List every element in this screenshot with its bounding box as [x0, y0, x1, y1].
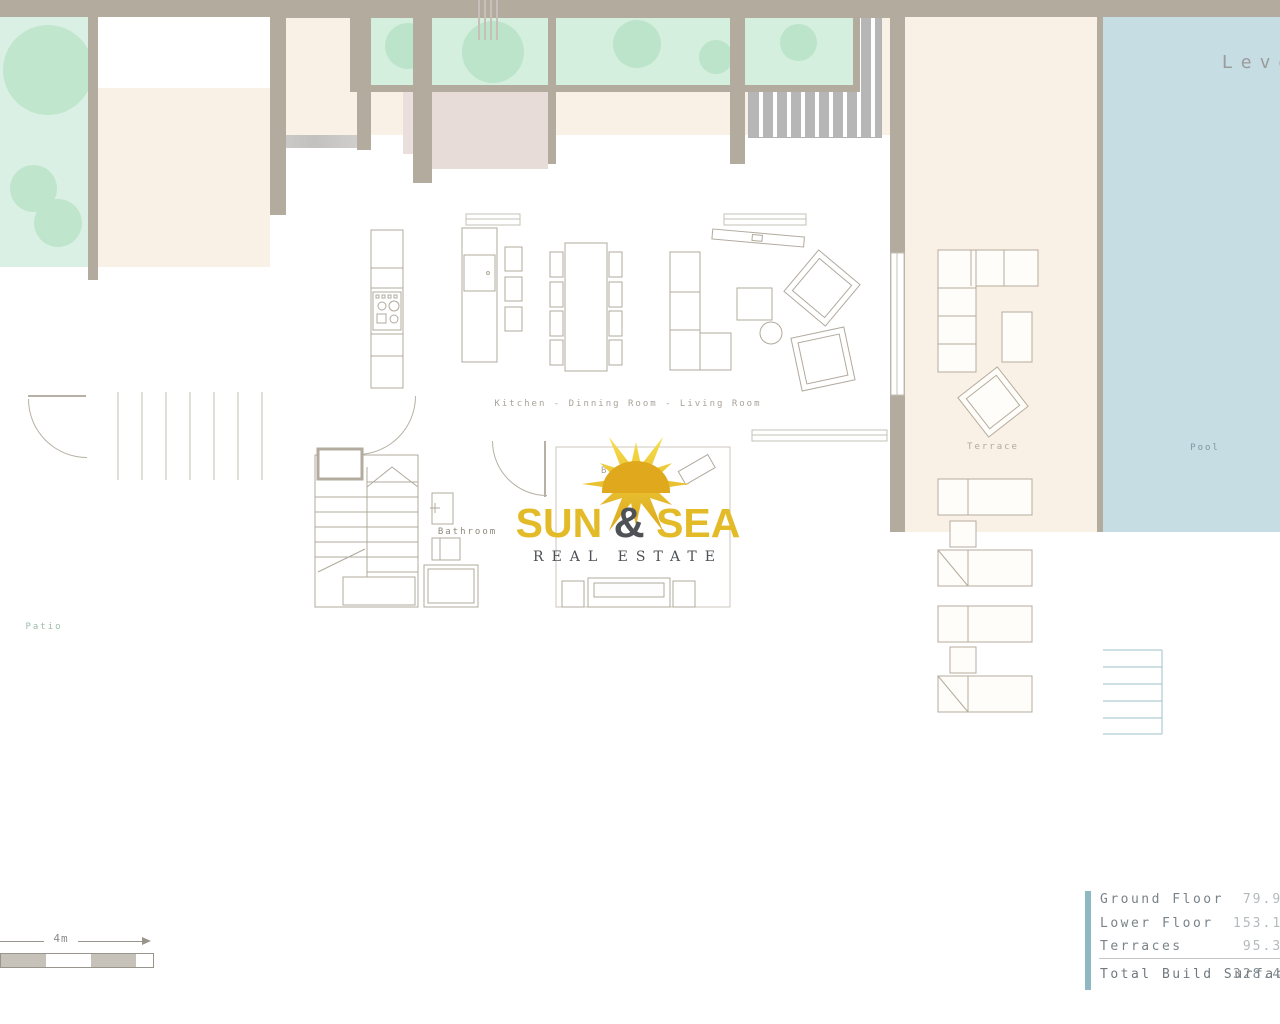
- pool-steps: [1103, 650, 1162, 734]
- tv-board: [712, 229, 805, 247]
- legend-value: 95.38: [1185, 939, 1280, 954]
- bedroom-cabinet: [678, 455, 715, 485]
- legend-value: 153.18: [1185, 916, 1280, 931]
- armchair: [784, 250, 860, 326]
- legend-total-value: 328.49: [1185, 967, 1280, 982]
- sofa-l-shape: [670, 252, 731, 370]
- window-right-wall: [891, 253, 904, 395]
- logo-tagline: REAL ESTATE: [478, 549, 778, 565]
- coffee-table: [737, 288, 772, 320]
- scale-bar-line: [78, 941, 142, 942]
- logo-wordmark: SUN & SEA: [478, 501, 778, 545]
- window-top-island: [466, 214, 520, 225]
- scale-bar-ruler: [0, 953, 154, 968]
- scale-bar-label: 4m: [44, 932, 78, 945]
- patio-room-label: Patio: [4, 622, 84, 632]
- logo-ampersand: &: [614, 499, 645, 547]
- level-title: Level: [1199, 52, 1280, 73]
- window-top-living: [724, 214, 806, 225]
- bathroom-sink: [430, 493, 453, 524]
- scale-bar-arrow-icon: [142, 937, 151, 945]
- entry-stairs-treads: [118, 392, 262, 480]
- side-round-table: [760, 322, 782, 344]
- pool-room-label: Pool: [1163, 443, 1247, 453]
- sun-loungers: [938, 479, 1032, 712]
- bed-set: [562, 578, 695, 607]
- logo-word-sea: SEA: [656, 500, 740, 546]
- legend-label: Terraces: [1100, 939, 1183, 954]
- window-living-south: [752, 430, 887, 441]
- legend-divider: [1099, 958, 1280, 959]
- terrace-table: [1002, 312, 1032, 362]
- armchair: [791, 327, 855, 391]
- kitchen-island: [462, 228, 497, 362]
- legend-value: 79.95: [1185, 892, 1280, 907]
- kitchen-room-label: Kitchen - Dinning Room - Living Room: [488, 399, 768, 409]
- floor-plan-page: Kitchen - Dinning Room - Living Room Bat…: [0, 0, 1280, 1024]
- terrace-room-label: Terrace: [948, 442, 1038, 452]
- toilet: [432, 538, 460, 560]
- legend-accent-bar: [1085, 891, 1091, 990]
- interior-staircase: [315, 449, 418, 607]
- dining-table-set: [550, 243, 622, 371]
- stove: [373, 292, 401, 330]
- scale-bar-line: [0, 941, 44, 942]
- logo-word-sun: SUN: [516, 500, 603, 546]
- bar-stools: [505, 247, 522, 331]
- terrace-chair: [958, 367, 1028, 437]
- shower: [424, 565, 478, 607]
